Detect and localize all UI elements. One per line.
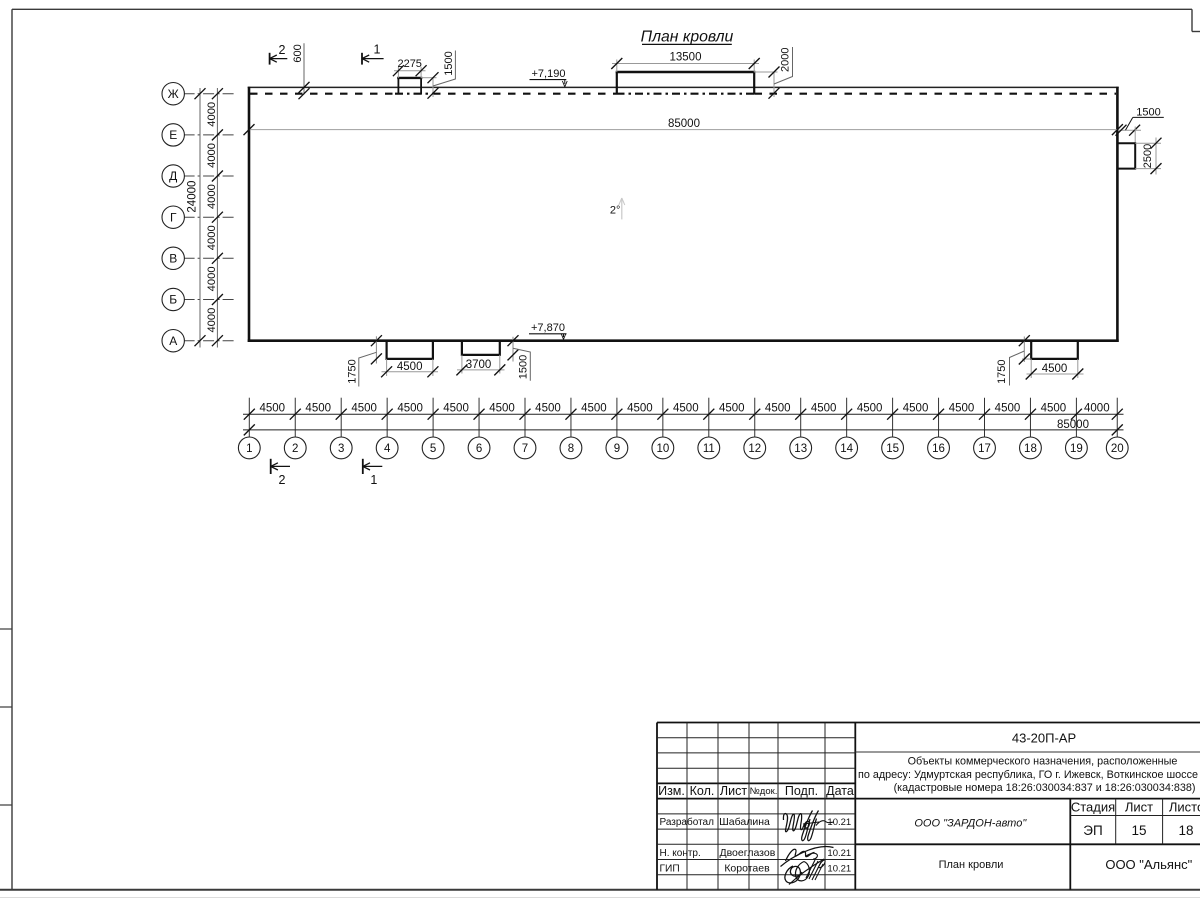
svg-text:Двоеглазов: Двоеглазов [719, 847, 775, 859]
svg-text:85000: 85000 [668, 118, 700, 130]
svg-text:13500: 13500 [670, 51, 702, 63]
svg-text:2500: 2500 [1142, 144, 1154, 168]
svg-text:10: 10 [656, 443, 669, 455]
svg-text:18: 18 [1178, 823, 1193, 838]
svg-text:1500: 1500 [518, 355, 530, 379]
svg-text:Подп.: Подп. [785, 784, 818, 798]
svg-text:В: В [169, 251, 177, 265]
svg-text:4500: 4500 [443, 402, 469, 414]
svg-text:Лист: Лист [1125, 800, 1153, 815]
svg-text:24000: 24000 [187, 181, 199, 213]
svg-text:15: 15 [1131, 823, 1146, 838]
svg-text:по адресу: Удмуртская республи: по адресу: Удмуртская республика, ГО г. … [858, 769, 1198, 781]
svg-text:4500: 4500 [949, 402, 975, 414]
svg-text:4500: 4500 [811, 402, 837, 414]
svg-text:План кровли: План кровли [939, 859, 1004, 871]
svg-text:13: 13 [794, 443, 807, 455]
svg-text:Д: Д [169, 169, 177, 183]
svg-text:4000: 4000 [206, 184, 218, 209]
svg-text:4500: 4500 [397, 361, 423, 373]
svg-text:Ж: Ж [168, 87, 179, 101]
svg-text:4500: 4500 [857, 402, 883, 414]
svg-text:20: 20 [1111, 443, 1124, 455]
svg-text:Кол.: Кол. [690, 784, 715, 798]
svg-text:4: 4 [384, 443, 391, 455]
svg-text:2°: 2° [610, 205, 621, 217]
svg-text:ГИП: ГИП [660, 864, 680, 875]
svg-text:17: 17 [978, 443, 991, 455]
svg-text:2: 2 [279, 43, 286, 57]
svg-text:Изм.: Изм. [658, 784, 685, 798]
svg-text:4500: 4500 [719, 402, 745, 414]
svg-text:2: 2 [292, 443, 298, 455]
svg-text:Коротаев: Коротаев [724, 862, 770, 874]
svg-text:4500: 4500 [581, 402, 607, 414]
svg-text:4000: 4000 [1084, 402, 1110, 414]
svg-text:4500: 4500 [765, 402, 791, 414]
svg-text:16: 16 [932, 443, 945, 455]
svg-text:5: 5 [430, 443, 436, 455]
svg-text:4500: 4500 [305, 402, 331, 414]
svg-text:4500: 4500 [351, 402, 377, 414]
svg-text:(кадастровые номера 18:26:0300: (кадастровые номера 18:26:030034:837 и 1… [894, 782, 1196, 794]
svg-text:+7,870: +7,870 [531, 322, 565, 334]
svg-text:4500: 4500 [489, 402, 515, 414]
svg-text:Шабалина: Шабалина [719, 816, 770, 828]
svg-text:4500: 4500 [259, 402, 285, 414]
svg-text:4500: 4500 [627, 402, 653, 414]
svg-text:ЭП: ЭП [1083, 823, 1102, 838]
svg-text:План кровли: План кровли [641, 28, 734, 45]
svg-text:4500: 4500 [903, 402, 929, 414]
svg-text:2: 2 [279, 473, 286, 487]
svg-text:Разработал: Разработал [660, 816, 715, 828]
svg-text:19: 19 [1070, 443, 1083, 455]
svg-text:+7,190: +7,190 [532, 68, 566, 80]
svg-text:1500: 1500 [1136, 106, 1160, 118]
svg-text:4000: 4000 [206, 143, 218, 168]
svg-text:14: 14 [840, 443, 853, 455]
svg-text:Объекты коммерческого назначен: Объекты коммерческого назначения, распол… [908, 756, 1178, 768]
svg-text:9: 9 [614, 443, 620, 455]
svg-text:ООО "ЗАРДОН-авто": ООО "ЗАРДОН-авто" [914, 818, 1027, 830]
svg-text:4500: 4500 [397, 402, 423, 414]
svg-text:Е: Е [169, 128, 177, 142]
svg-text:4000: 4000 [206, 266, 218, 291]
svg-text:12: 12 [748, 443, 761, 455]
svg-text:1750: 1750 [346, 359, 358, 383]
svg-text:1: 1 [374, 43, 381, 57]
svg-text:Лист: Лист [720, 784, 747, 798]
svg-text:3: 3 [338, 443, 344, 455]
svg-text:10.21: 10.21 [827, 848, 851, 859]
svg-text:43-20П-АР: 43-20П-АР [1012, 731, 1076, 746]
svg-text:№док.: №док. [750, 786, 778, 797]
svg-text:Стадия: Стадия [1071, 800, 1115, 815]
svg-text:1: 1 [246, 443, 252, 455]
svg-text:Н. контр.: Н. контр. [660, 848, 701, 859]
svg-text:18: 18 [1024, 443, 1037, 455]
svg-text:600: 600 [292, 44, 304, 62]
svg-text:3700: 3700 [466, 359, 492, 371]
svg-text:8: 8 [568, 443, 574, 455]
svg-text:7: 7 [522, 443, 528, 455]
svg-text:11: 11 [703, 443, 715, 455]
svg-text:Г: Г [170, 210, 177, 224]
svg-text:1500: 1500 [443, 51, 455, 75]
svg-text:4000: 4000 [206, 308, 218, 333]
svg-text:15: 15 [886, 443, 899, 455]
svg-text:4500: 4500 [1041, 402, 1067, 414]
svg-text:4500: 4500 [535, 402, 561, 414]
svg-text:4000: 4000 [206, 225, 218, 250]
svg-text:Б: Б [169, 293, 177, 307]
svg-text:1: 1 [370, 473, 377, 487]
svg-text:4500: 4500 [673, 402, 699, 414]
svg-text:2000: 2000 [779, 48, 791, 72]
svg-text:Дата: Дата [826, 784, 854, 798]
svg-text:4000: 4000 [206, 102, 218, 127]
svg-text:1750: 1750 [996, 359, 1008, 383]
svg-text:2275: 2275 [397, 58, 421, 70]
svg-text:85000: 85000 [1057, 419, 1089, 431]
svg-text:4500: 4500 [995, 402, 1021, 414]
svg-text:4500: 4500 [1042, 363, 1068, 375]
svg-text:ООО "Альянс": ООО "Альянс" [1105, 857, 1192, 872]
svg-text:6: 6 [476, 443, 482, 455]
svg-text:10.21: 10.21 [827, 863, 851, 874]
svg-text:Листов: Листов [1169, 800, 1200, 815]
svg-text:А: А [169, 334, 177, 348]
